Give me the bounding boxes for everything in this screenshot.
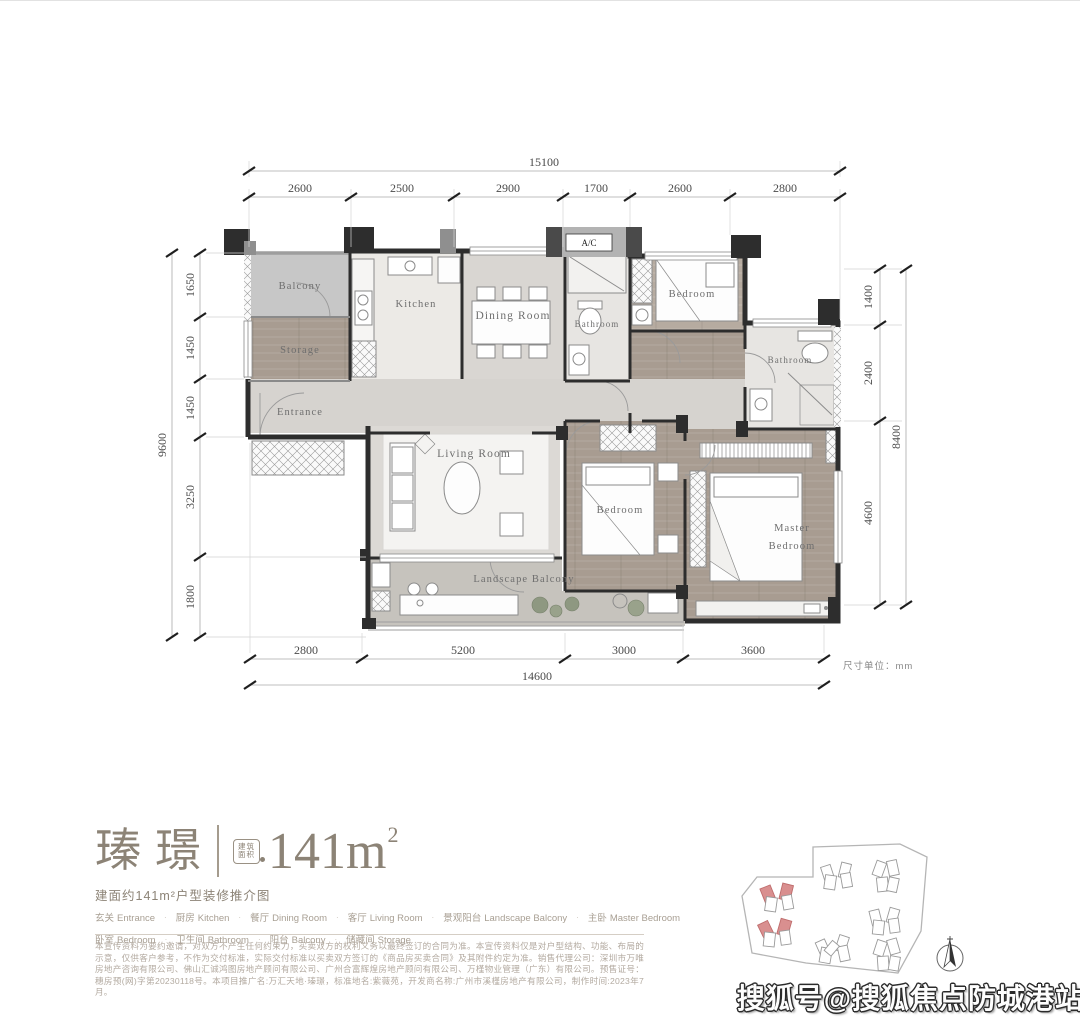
label-bathroom-1: Bathroom [575,319,620,329]
label-bedroom-top: Bedroom [669,289,716,300]
dining-table [472,287,550,358]
dim-bottom-total: 14600 [522,669,552,683]
legend-separator: · [432,913,435,922]
dim-top-3: 2900 [496,181,520,195]
legend-item: 客厅Living Room [348,910,423,924]
legend-row-1: 玄关Entrance · 厨房Kitchen · 餐厅Dining Room ·… [95,910,655,924]
dim-bottom-2: 5200 [451,643,475,657]
dim-top-total: 15100 [529,155,559,169]
dim-right-2: 2400 [861,361,875,385]
dim-bottom-4: 3600 [741,643,765,657]
dim-bottom-3: 3000 [612,643,636,657]
site-plan [742,844,927,973]
page: A/C Balcony Storage Kitchen Dining Room … [0,0,1080,1020]
dim-right: 1400 2400 4600 8400 [844,265,912,609]
title-divider [217,825,219,877]
dim-top-2: 2500 [390,181,414,195]
legend-item: 主卧Master Bedroom [588,910,680,924]
label-balcony: Balcony [279,281,322,292]
dim-top-5: 2600 [668,181,692,195]
area-badge-line2: 面积 [238,851,255,860]
dim-left-2: 1450 [183,336,197,360]
ac-label: A/C [581,238,596,248]
label-living: Living Room [437,448,511,460]
label-kitchen: Kitchen [396,299,437,310]
label-bedroom-mid: Bedroom [597,505,644,516]
legend: 玄关Entrance · 厨房Kitchen · 餐厅Dining Room ·… [95,902,655,946]
dim-top-4: 1700 [584,181,608,195]
unit-note: 尺寸单位：mm [843,660,913,672]
legend-separator: · [336,913,339,922]
legend-separator: · [238,913,241,922]
dim-left-total: 9600 [155,433,169,457]
label-landscape-balcony: Landscape Balcony [473,574,574,585]
label-entrance: Entrance [277,407,323,418]
label-master-1: Master [774,523,810,534]
dim-top-1: 2600 [288,181,312,195]
area-sup: 2 [387,822,398,847]
watermark: 搜狐号@搜狐焦点防城港站 [737,977,1080,1017]
dim-right-total: 8400 [889,425,903,449]
title-block: 瑧璟 建筑 面积 141m2 [95,819,398,883]
dim-right-3: 4600 [861,501,875,525]
dim-bottom-1: 2800 [294,643,318,657]
label-storage: Storage [280,345,320,356]
label-bathroom-2: Bathroom [768,355,813,365]
ac-unit: A/C [546,227,642,257]
badge-dot-icon [260,857,265,862]
legend-item: 玄关Entrance [95,910,155,924]
legend-item: 厨房Kitchen [176,910,230,924]
compass-icon [937,936,963,971]
entrance-cabinet [252,441,344,475]
area-badge: 建筑 面积 [233,839,260,864]
legend-item: 餐厅Dining Room [250,910,327,924]
area-value: 141m2 [268,824,398,878]
dim-left-3: 1450 [183,396,197,420]
project-name: 瑧璟 [95,828,215,874]
legend-separator: · [576,913,579,922]
dim-right-1: 1400 [861,285,875,309]
dim-left-1: 1650 [183,273,197,297]
dim-top-6: 2800 [773,181,797,195]
label-dining: Dining Room [475,310,550,322]
divider-rule [95,934,644,935]
legend-item: 景观阳台Landscape Balcony [443,910,567,924]
dim-left-4: 3250 [183,485,197,509]
label-master-2: Bedroom [769,541,816,552]
area-number: 141m [268,823,386,880]
disclaimer-text: 本宣传资料为要约邀请，对双方不产生任何约束力，买卖双方的权利义务以最终签订的合同… [95,941,644,999]
legend-separator: · [164,913,167,922]
dim-left-5: 1800 [183,585,197,609]
